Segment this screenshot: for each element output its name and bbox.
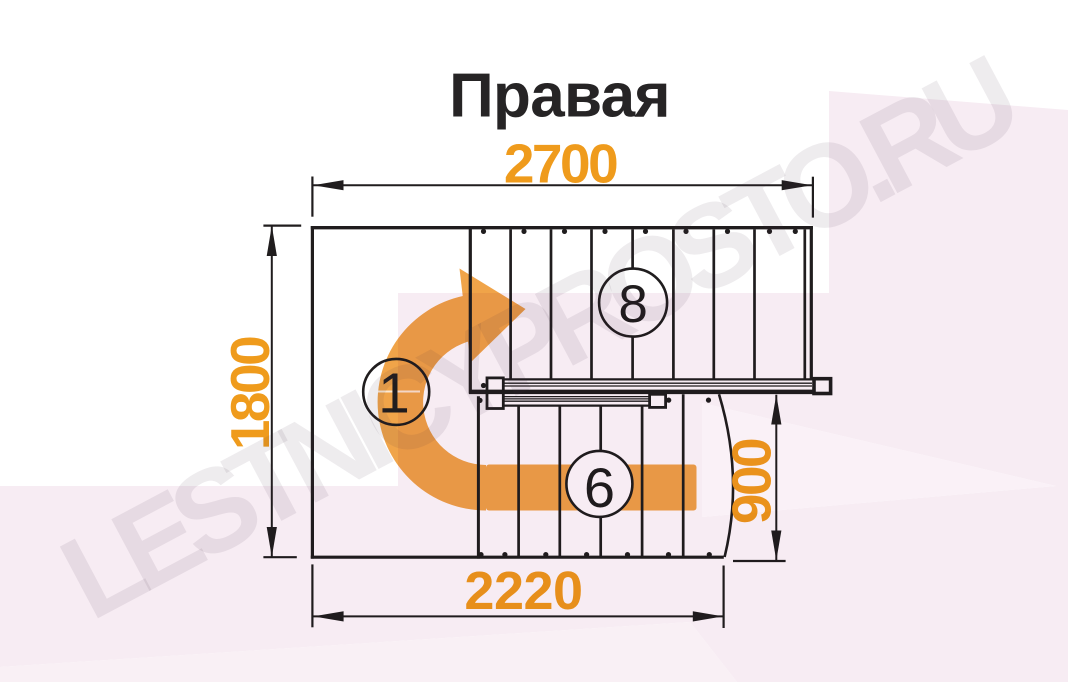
svg-text:2700: 2700	[504, 133, 617, 195]
svg-text:Правая: Правая	[449, 61, 670, 130]
